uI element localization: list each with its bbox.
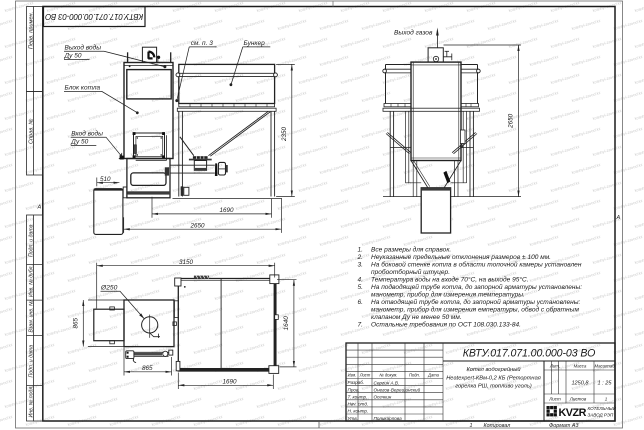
svg-text:На подводящей трубе котла, до: На подводящей трубе котла, до запорной а… (371, 283, 582, 291)
svg-text:КВТУ.017.071.00.000-03 ВО: КВТУ.017.071.00.000-03 ВО (463, 347, 595, 359)
svg-text:KVZR: KVZR (559, 407, 587, 419)
svg-text:1690: 1690 (223, 379, 238, 386)
svg-text:Осечкин: Осечкин (374, 395, 392, 400)
svg-text:ЗАВОД РЭП: ЗАВОД РЭП (588, 413, 615, 418)
svg-text:Масштаб: Масштаб (594, 364, 615, 369)
svg-text:Все размеры для справок.: Все размеры для справок. (371, 246, 451, 254)
svg-text:Выход газов: Выход газов (394, 28, 433, 36)
svg-text:Нач. отд.: Нач. отд. (348, 402, 369, 407)
svg-text:Листов: Листов (569, 397, 587, 402)
svg-text:Ду 50: Ду 50 (64, 53, 82, 60)
svg-text:На отводящей трубе котла, до з: На отводящей трубе котла, до запорной ар… (371, 298, 581, 306)
svg-text:Температура воды на входе 70°С: Температура воды на входе 70°С, на выход… (371, 276, 529, 284)
svg-text:Дата: Дата (427, 373, 440, 378)
svg-text:3150: 3150 (179, 259, 194, 266)
svg-text:1.: 1. (358, 247, 364, 254)
svg-text:Heatexpert-КВм-0,2 КБ (Ретортн: Heatexpert-КВм-0,2 КБ (Ретортная (446, 375, 541, 381)
svg-text:Лист: Лист (359, 373, 371, 378)
svg-text:7.: 7. (358, 322, 364, 329)
svg-text:Лит.: Лит. (549, 364, 560, 369)
svg-text:Справ. №: Справ. № (28, 119, 34, 144)
svg-text:3.: 3. (358, 262, 364, 269)
svg-text:Подп. и дата: Подп. и дата (28, 345, 34, 378)
svg-text:Бункер: Бункер (244, 40, 266, 47)
svg-text:Ø250: Ø250 (100, 284, 118, 291)
svg-text:Изм.: Изм. (348, 372, 357, 377)
svg-text:4.: 4. (358, 277, 364, 284)
svg-text:Т. контр.: Т. контр. (348, 395, 368, 400)
svg-text:Пров.: Пров. (348, 387, 360, 392)
svg-text:Копировал: Копировал (484, 423, 511, 429)
svg-text:Выход воды: Выход воды (65, 43, 102, 51)
svg-text:865: 865 (72, 317, 79, 328)
svg-text:Разраб.: Разраб. (348, 380, 365, 385)
svg-text:№ докум.: № докум. (379, 373, 397, 378)
svg-text:На боковой стенке котла в обла: На боковой стенке котла в области топочн… (371, 261, 582, 269)
svg-text:2.: 2. (357, 254, 364, 261)
svg-text:1250,8: 1250,8 (571, 380, 589, 386)
svg-text:Подп.: Подп. (409, 373, 420, 378)
svg-text:Лист: Лист (548, 397, 561, 402)
svg-text:865: 865 (142, 365, 153, 372)
svg-text:Поликарпова: Поликарпова (374, 416, 403, 421)
svg-text:Взам. инв. №: Взам. инв. № (28, 300, 34, 332)
svg-text:манометр, прибор для измерения: манометр, прибор для измерения емператур… (371, 306, 579, 314)
svg-text:Формат А3: Формат А3 (549, 423, 579, 429)
svg-text:Вход воды: Вход воды (71, 129, 103, 137)
svg-text:горелка РШ, топливо уголь): горелка РШ, топливо уголь) (455, 383, 532, 389)
svg-text:Утв.: Утв. (348, 416, 358, 421)
svg-text:манометр, прибор для измерения: манометр, прибор для измерения температу… (371, 291, 525, 299)
svg-text:510: 510 (100, 176, 111, 183)
svg-text:Подп. и дата: Подп. и дата (28, 224, 34, 257)
svg-text:см. п. 3: см. п. 3 (191, 40, 214, 47)
svg-text:Онегов-Верещинский: Онегов-Верещинский (374, 386, 421, 392)
svg-text:Блок котла: Блок котла (65, 85, 101, 92)
svg-text:Масса: Масса (574, 364, 587, 369)
svg-text:1640: 1640 (283, 316, 290, 331)
svg-text:5.: 5. (358, 284, 364, 291)
svg-text:6.: 6. (358, 299, 364, 306)
svg-text:Неуказанные предельные отклоне: Неуказанные предельные отклонения размер… (371, 253, 551, 261)
svg-text:пробоотборный штуцер.: пробоотборный штуцер. (371, 268, 450, 276)
svg-text:2650: 2650 (508, 113, 515, 129)
svg-text:Котел водогрейный: Котел водогрейный (466, 366, 521, 373)
svg-text:Перв. примен.: Перв. примен. (28, 12, 34, 49)
svg-text:Остальные требования по ОСТ 10: Остальные требования по ОСТ 108.030.133-… (371, 321, 521, 329)
svg-text:1 : 25: 1 : 25 (598, 380, 613, 386)
svg-text:Сергин А.В.: Сергин А.В. (374, 380, 400, 385)
svg-text:2350: 2350 (281, 127, 288, 143)
svg-text:А: А (37, 205, 42, 211)
svg-text:Инв. № дубл.: Инв. № дубл. (28, 265, 34, 297)
svg-text:А: А (616, 215, 621, 221)
svg-text:2650: 2650 (190, 223, 206, 230)
svg-text:1: 1 (470, 423, 473, 429)
svg-text:КВТУ.017.071.00.000-03 ВО: КВТУ.017.071.00.000-03 ВО (45, 12, 143, 21)
svg-text:КОТЕЛЬНЫЙ: КОТЕЛЬНЫЙ (588, 404, 617, 411)
svg-text:1690: 1690 (220, 207, 235, 214)
svg-text:Инв. № подл.: Инв. № подл. (28, 385, 34, 417)
svg-text:Н. контр.: Н. контр. (348, 409, 369, 414)
svg-text:Ду 50: Ду 50 (70, 139, 88, 146)
svg-text:клапаном Ду не менее 50 мм.: клапаном Ду не менее 50 мм. (371, 314, 462, 321)
